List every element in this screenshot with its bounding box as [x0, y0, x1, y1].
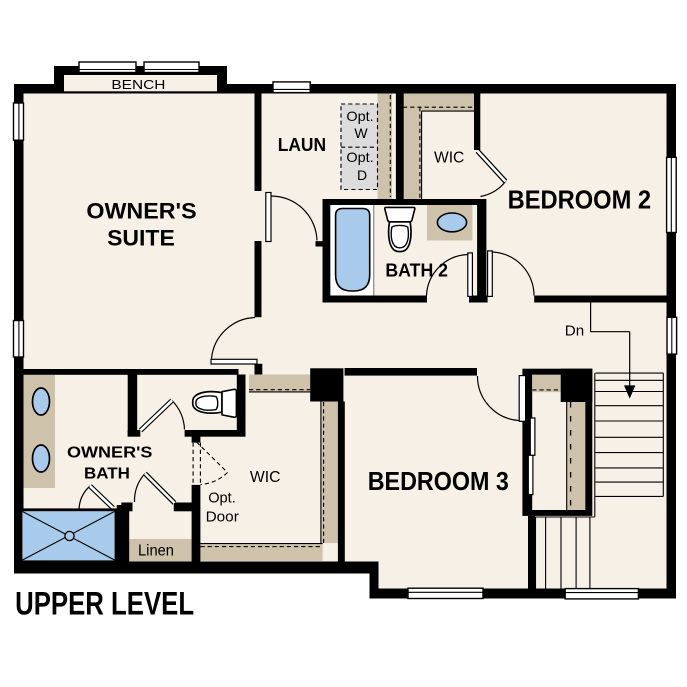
svg-text:BENCH: BENCH: [111, 77, 165, 92]
svg-text:Opt.: Opt.: [346, 108, 373, 124]
svg-text:Door: Door: [206, 509, 239, 526]
svg-text:D: D: [357, 167, 367, 183]
svg-text:Opt.: Opt.: [208, 489, 236, 506]
svg-text:Linen: Linen: [138, 542, 174, 559]
svg-text:Opt.: Opt.: [346, 149, 373, 165]
svg-text:LAUN: LAUN: [278, 135, 326, 155]
svg-text:BATH 2: BATH 2: [385, 261, 448, 281]
svg-text:WIC: WIC: [250, 469, 281, 486]
svg-text:BEDROOM 2: BEDROOM 2: [508, 185, 651, 215]
svg-text:WIC: WIC: [434, 149, 464, 166]
svg-text:OWNER'S: OWNER'S: [86, 198, 196, 223]
svg-text:BEDROOM 3: BEDROOM 3: [368, 466, 509, 496]
svg-text:SUITE: SUITE: [107, 226, 175, 251]
svg-text:BATH: BATH: [84, 465, 130, 482]
svg-text:W: W: [354, 125, 368, 141]
svg-text:OWNER'S: OWNER'S: [67, 444, 153, 461]
svg-text:Dn: Dn: [565, 322, 584, 339]
svg-text:UPPER LEVEL: UPPER LEVEL: [15, 586, 194, 622]
